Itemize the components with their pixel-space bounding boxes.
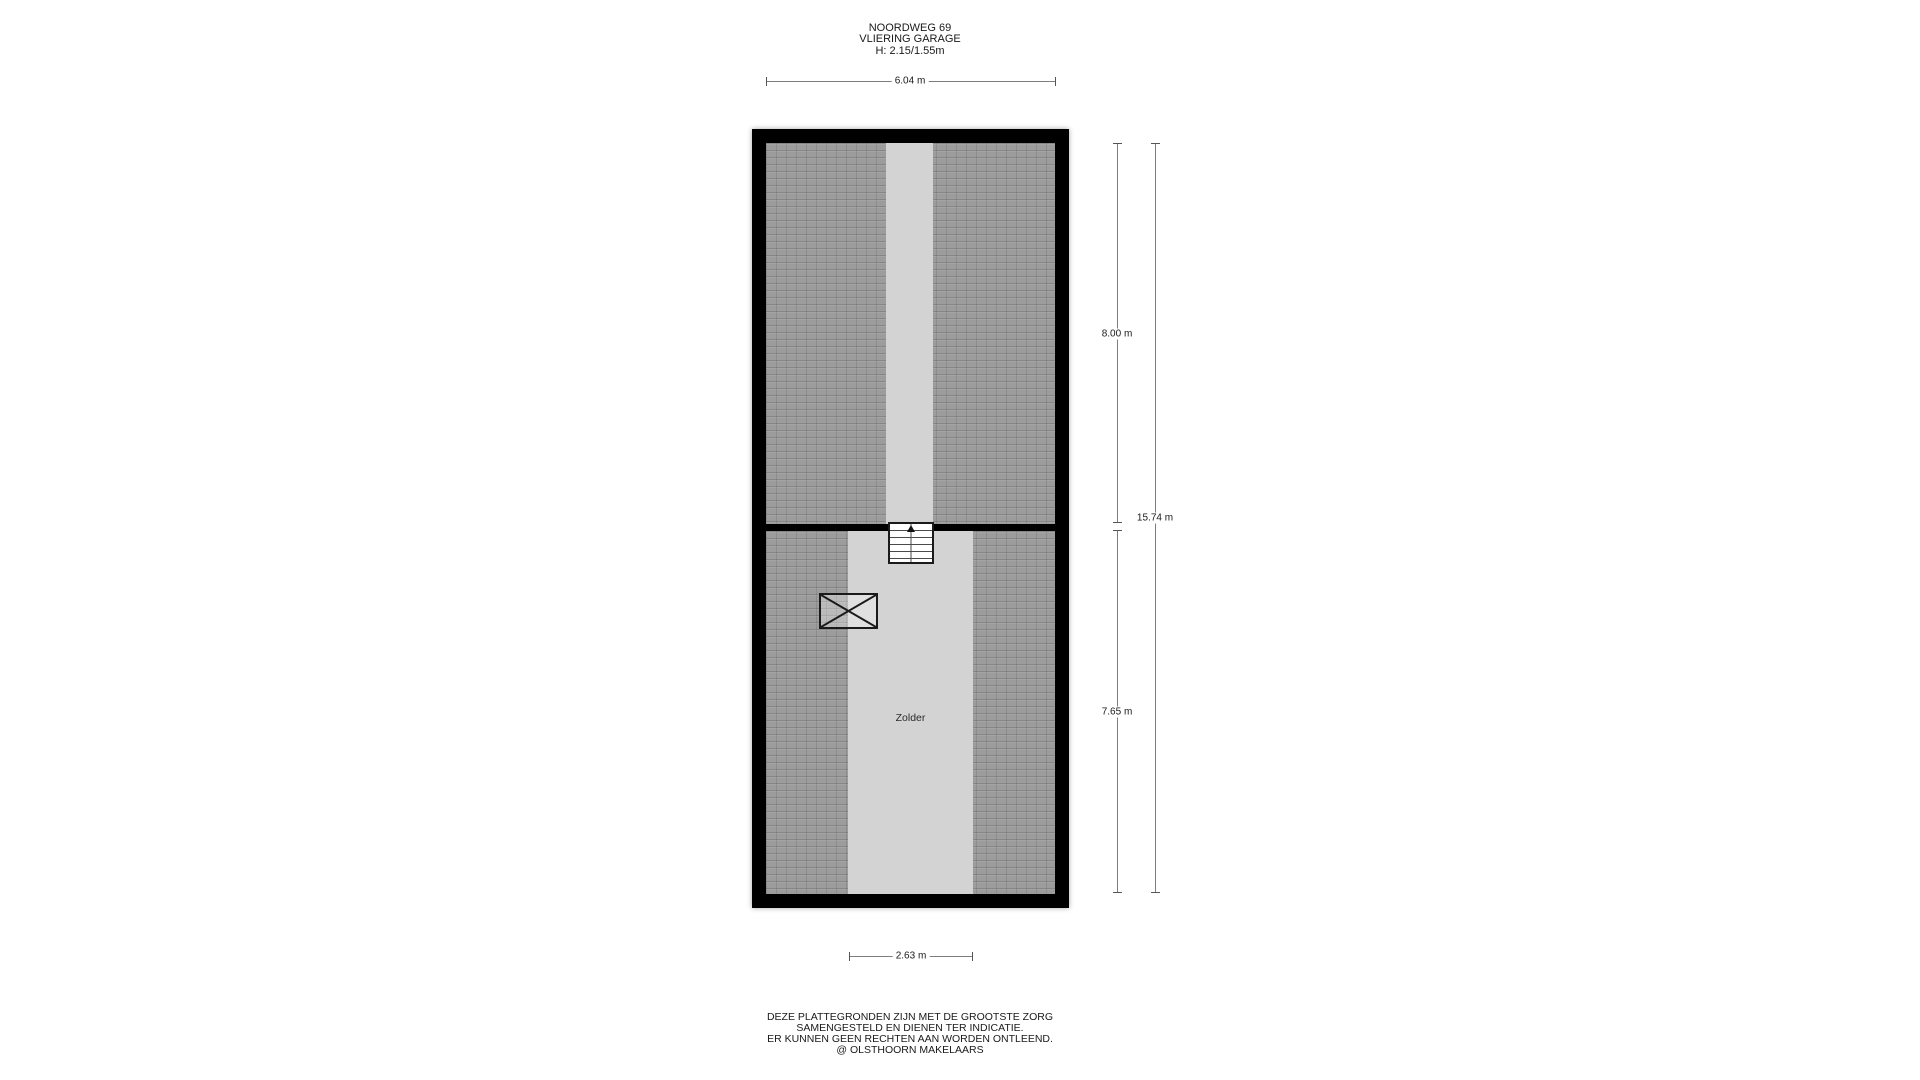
plan-title-heights: H: 2.15/1.55m xyxy=(735,46,1085,57)
upper-walkable-strip xyxy=(886,143,933,524)
footer-disclaimer: DEZE PLATTEGRONDEN ZIJN MET DE GROOTSTE … xyxy=(710,1012,1110,1056)
dimension-label-lower-height: 7.65 m xyxy=(1099,707,1136,718)
dimension-label-total-height: 15.74 m xyxy=(1134,513,1176,524)
skylight-cross-icon xyxy=(821,595,876,627)
skylight-symbol xyxy=(819,593,878,629)
floor-plan: Zolder xyxy=(752,129,1069,908)
dimension-label-top-width: 6.04 m xyxy=(892,76,929,87)
stairs-up-arrow-icon xyxy=(907,525,915,532)
room-label-zolder: Zolder xyxy=(848,712,973,724)
plan-title-block: NOORDWEG 69 VLIERING GARAGE H: 2.15/1.55… xyxy=(735,23,1085,57)
dimension-label-strip-width: 2.63 m xyxy=(893,951,930,962)
dimension-label-upper-height: 8.00 m xyxy=(1099,329,1136,340)
stairs-symbol xyxy=(888,522,934,564)
upper-roof-hatch-area xyxy=(766,143,1055,524)
footer-credit: @ OLSTHOORN MAKELAARS xyxy=(710,1045,1110,1056)
floor-plan-interior: Zolder xyxy=(766,143,1055,894)
